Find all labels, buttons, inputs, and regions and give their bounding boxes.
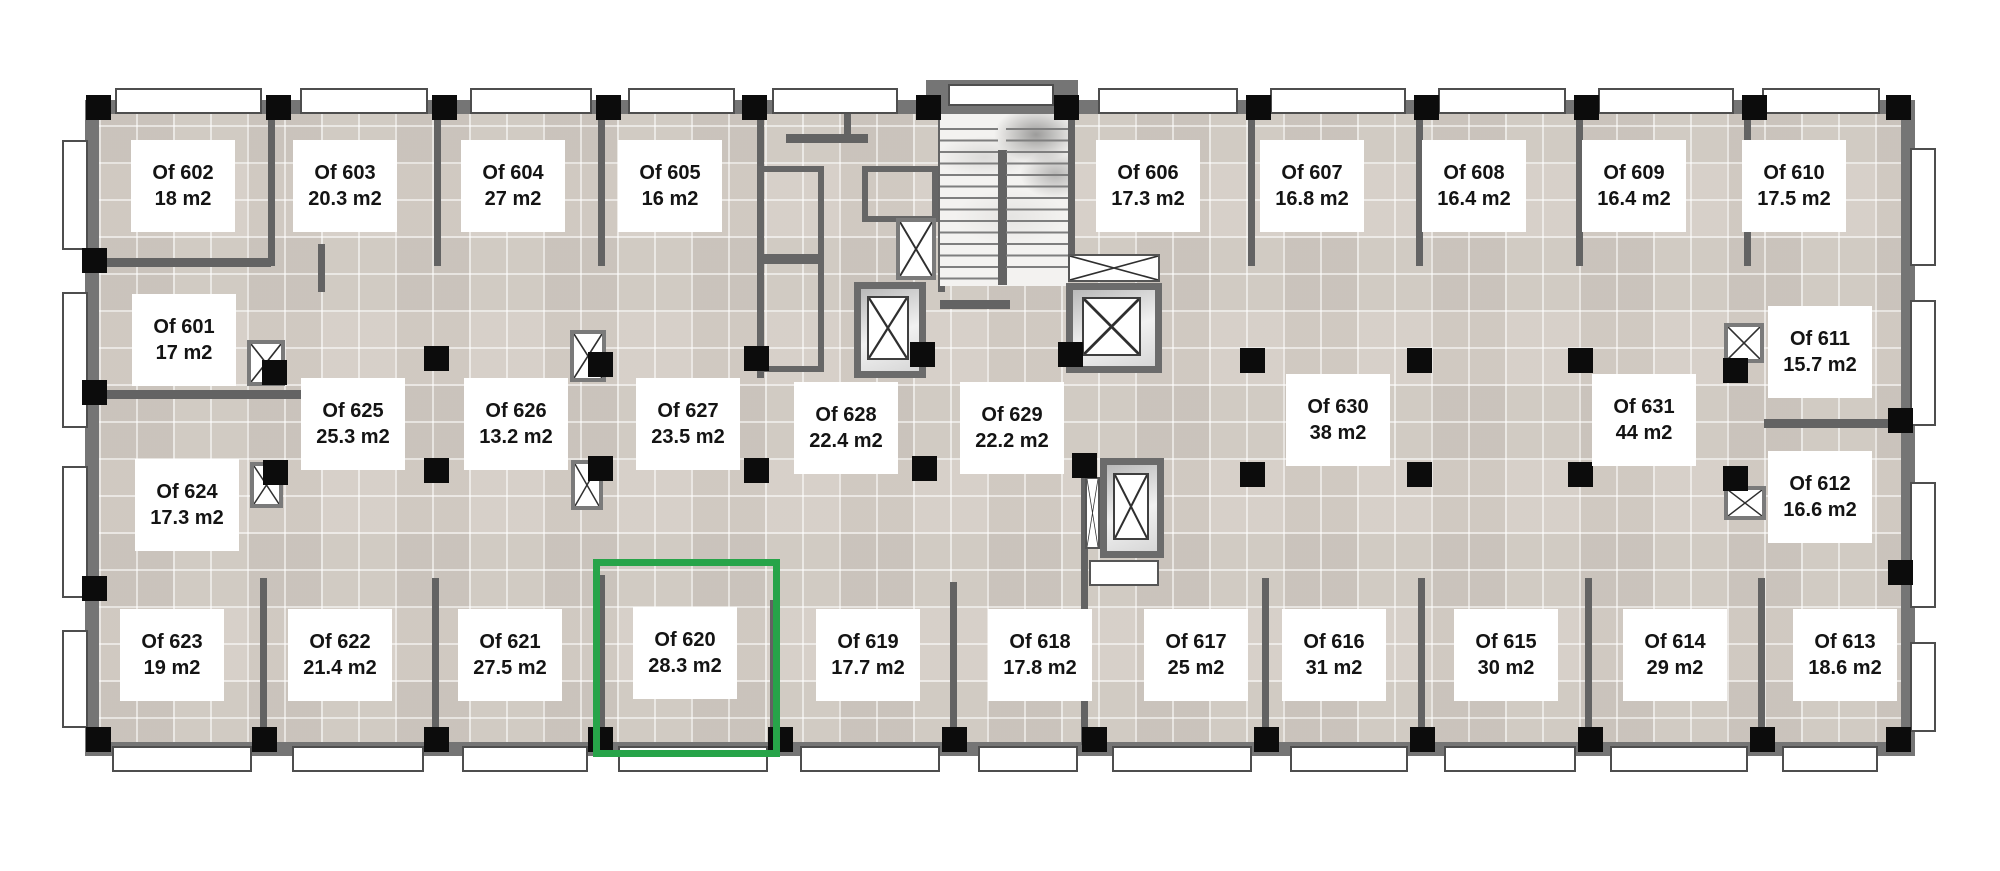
partition-wall (432, 578, 439, 742)
office-number: Of 620 (654, 627, 715, 653)
structural-column (86, 727, 111, 752)
office-number: Of 619 (837, 629, 898, 655)
structural-column (1240, 462, 1265, 487)
elevator (1100, 458, 1164, 558)
office-label-of-606[interactable]: Of 60617.3 m2 (1096, 140, 1200, 232)
office-label-of-611[interactable]: Of 61115.7 m2 (1768, 306, 1872, 398)
office-label-of-631[interactable]: Of 63144 m2 (1592, 374, 1696, 466)
partition-wall (434, 114, 441, 266)
structural-column (596, 95, 621, 120)
structural-column (1058, 342, 1083, 367)
partition-wall (1758, 578, 1765, 742)
partition-wall (598, 114, 605, 266)
structural-column (252, 727, 277, 752)
structural-column (263, 460, 288, 485)
structural-column (1723, 358, 1748, 383)
stair-treads (1006, 128, 1068, 268)
office-number: Of 602 (152, 160, 213, 186)
structural-column (744, 458, 769, 483)
office-number: Of 627 (657, 398, 718, 424)
office-label-of-610[interactable]: Of 61017.5 m2 (1742, 140, 1846, 232)
structural-column (588, 456, 613, 481)
office-label-of-601[interactable]: Of 60117 m2 (132, 294, 236, 386)
structural-column (744, 346, 769, 371)
structural-column (1723, 466, 1748, 491)
x-cross-icon (869, 298, 907, 358)
office-area: 18 m2 (155, 186, 212, 212)
office-number: Of 622 (309, 629, 370, 655)
office-label-of-615[interactable]: Of 61530 m2 (1454, 609, 1558, 701)
office-label-of-628[interactable]: Of 62822.4 m2 (794, 382, 898, 474)
office-number: Of 618 (1009, 629, 1070, 655)
office-label-of-609[interactable]: Of 60916.4 m2 (1582, 140, 1686, 232)
structural-column (916, 95, 941, 120)
x-cross-icon (1115, 475, 1147, 538)
partition-wall (95, 258, 271, 267)
window (1910, 482, 1936, 608)
elevator-lobby-box (1089, 560, 1159, 586)
office-label-of-614[interactable]: Of 61429 m2 (1623, 609, 1727, 701)
window (1598, 88, 1734, 114)
office-label-of-622[interactable]: Of 62221.4 m2 (288, 609, 392, 701)
window (1112, 746, 1252, 772)
office-number: Of 606 (1117, 160, 1178, 186)
office-label-of-604[interactable]: Of 60427 m2 (461, 140, 565, 232)
elevator-car (1082, 297, 1141, 356)
structural-column (588, 352, 613, 377)
office-number: Of 628 (815, 402, 876, 428)
window (112, 746, 252, 772)
office-area: 17 m2 (156, 340, 213, 366)
structural-column (1410, 727, 1435, 752)
x-cross-icon (900, 222, 932, 276)
structural-column (1886, 727, 1911, 752)
office-number: Of 623 (141, 629, 202, 655)
office-label-of-624[interactable]: Of 62417.3 m2 (135, 459, 239, 551)
structural-column (262, 360, 287, 385)
structural-column (1750, 727, 1775, 752)
partition-wall (1585, 578, 1592, 742)
window (628, 88, 735, 114)
structural-column (432, 95, 457, 120)
office-area: 17.3 m2 (150, 505, 223, 531)
window (772, 88, 898, 114)
office-label-of-617[interactable]: Of 61725 m2 (1144, 609, 1248, 701)
x-cross-icon (1728, 490, 1762, 516)
office-area: 27.5 m2 (473, 655, 546, 681)
office-label-of-629[interactable]: Of 62922.2 m2 (960, 382, 1064, 474)
office-area: 17.5 m2 (1757, 186, 1830, 212)
structural-column (82, 380, 107, 405)
office-area: 25.3 m2 (316, 424, 389, 450)
window (800, 746, 940, 772)
partition-wall (318, 244, 325, 292)
structural-column (1578, 727, 1603, 752)
structural-column (424, 458, 449, 483)
shaft (1724, 323, 1764, 363)
partition-wall (260, 578, 267, 742)
window (1290, 746, 1408, 772)
office-number: Of 630 (1307, 394, 1368, 420)
x-cross-icon (1087, 479, 1098, 547)
office-area: 30 m2 (1478, 655, 1535, 681)
office-area: 16.8 m2 (1275, 186, 1348, 212)
office-area: 19 m2 (144, 655, 201, 681)
window (1098, 88, 1238, 114)
partition-wall (1262, 578, 1269, 742)
office-area: 16.4 m2 (1597, 186, 1670, 212)
structural-column (1886, 95, 1911, 120)
office-number: Of 608 (1443, 160, 1504, 186)
window (62, 292, 88, 428)
structural-column (424, 346, 449, 371)
office-label-of-605[interactable]: Of 60516 m2 (618, 140, 722, 232)
office-label-of-608[interactable]: Of 60816.4 m2 (1422, 140, 1526, 232)
office-number: Of 604 (482, 160, 543, 186)
window (300, 88, 428, 114)
office-label-of-619[interactable]: Of 61917.7 m2 (816, 609, 920, 701)
office-area: 17.8 m2 (1003, 655, 1076, 681)
structural-column (912, 456, 937, 481)
partition-wall (1418, 578, 1425, 742)
office-number: Of 601 (153, 314, 214, 340)
office-number: Of 613 (1814, 629, 1875, 655)
window (978, 746, 1078, 772)
partition-wall (1248, 114, 1255, 266)
office-label-of-612[interactable]: Of 61216.6 m2 (1768, 451, 1872, 543)
window (1438, 88, 1566, 114)
office-area: 25 m2 (1168, 655, 1225, 681)
shaft-hatch (1085, 477, 1100, 549)
structural-column (1054, 95, 1079, 120)
office-label-of-625[interactable]: Of 62525.3 m2 (301, 378, 405, 470)
office-label-of-630[interactable]: Of 63038 m2 (1286, 374, 1390, 466)
office-number: Of 617 (1165, 629, 1226, 655)
office-label-of-618[interactable]: Of 61817.8 m2 (988, 609, 1092, 701)
shaft (896, 218, 936, 280)
window (1762, 88, 1880, 114)
office-label-of-603[interactable]: Of 60320.3 m2 (293, 140, 397, 232)
structural-column (424, 727, 449, 752)
window (115, 88, 262, 114)
office-area: 21.4 m2 (303, 655, 376, 681)
office-area: 23.5 m2 (651, 424, 724, 450)
partition-wall (950, 582, 957, 742)
office-number: Of 631 (1613, 394, 1674, 420)
office-area: 17.7 m2 (831, 655, 904, 681)
structural-column (1574, 95, 1599, 120)
window (948, 84, 1054, 106)
window (1270, 88, 1406, 114)
partition-wall (786, 134, 868, 143)
elevator-car (867, 296, 909, 360)
office-area: 29 m2 (1647, 655, 1704, 681)
structural-column (1414, 95, 1439, 120)
office-number: Of 610 (1763, 160, 1824, 186)
structural-column (86, 95, 111, 120)
structural-column (942, 727, 967, 752)
office-number: Of 607 (1281, 160, 1342, 186)
office-area: 18.6 m2 (1808, 655, 1881, 681)
structural-column (1407, 348, 1432, 373)
office-number: Of 621 (479, 629, 540, 655)
window (470, 88, 592, 114)
window (1782, 746, 1878, 772)
window (292, 746, 424, 772)
office-area: 17.3 m2 (1111, 186, 1184, 212)
office-number: Of 609 (1603, 160, 1664, 186)
office-label-of-626[interactable]: Of 62613.2 m2 (464, 378, 568, 470)
structural-column (1407, 462, 1432, 487)
office-label-of-623[interactable]: Of 62319 m2 (120, 609, 224, 701)
structural-column (910, 342, 935, 367)
elevator-car (1113, 473, 1149, 540)
office-number: Of 611 (1790, 326, 1850, 352)
shaft-hatch (1068, 254, 1160, 282)
partition-wall (1764, 419, 1890, 428)
office-number: Of 625 (322, 398, 383, 424)
office-area: 28.3 m2 (648, 653, 721, 679)
office-area: 15.7 m2 (1783, 352, 1856, 378)
office-area: 22.2 m2 (975, 428, 1048, 454)
partition-wall (268, 114, 275, 266)
x-cross-icon (1070, 256, 1158, 280)
structural-column (266, 95, 291, 120)
office-area: 13.2 m2 (479, 424, 552, 450)
office-label-of-607[interactable]: Of 60716.8 m2 (1260, 140, 1364, 232)
office-area: 31 m2 (1306, 655, 1363, 681)
structural-column (1742, 95, 1767, 120)
office-area: 16.4 m2 (1437, 186, 1510, 212)
structural-column (1240, 348, 1265, 373)
window (462, 746, 588, 772)
stair-treads (940, 128, 998, 280)
structural-column (1888, 408, 1913, 433)
window (62, 630, 88, 728)
service-room (862, 166, 938, 222)
window (1610, 746, 1748, 772)
office-label-of-621[interactable]: Of 62127.5 m2 (458, 609, 562, 701)
shaft (1724, 486, 1766, 520)
x-cross-icon (1084, 299, 1139, 354)
office-number: Of 614 (1644, 629, 1705, 655)
office-label-of-602[interactable]: Of 60218 m2 (131, 140, 235, 232)
office-number: Of 605 (639, 160, 700, 186)
structural-column (82, 576, 107, 601)
service-room (758, 166, 824, 260)
structural-column (1568, 462, 1593, 487)
office-number: Of 629 (981, 402, 1042, 428)
office-label-of-613[interactable]: Of 61318.6 m2 (1793, 609, 1897, 701)
office-area: 27 m2 (485, 186, 542, 212)
structural-column (1246, 95, 1271, 120)
partition-wall (1068, 114, 1075, 262)
office-area: 16 m2 (642, 186, 699, 212)
structural-column (1072, 453, 1097, 478)
office-area: 20.3 m2 (308, 186, 381, 212)
structural-column (742, 95, 767, 120)
structural-column (1082, 727, 1107, 752)
structural-column (1888, 560, 1913, 585)
structural-column (82, 248, 107, 273)
window (1910, 642, 1936, 732)
window (62, 140, 88, 250)
floor-plan: Of 60218 m2Of 60320.3 m2Of 60427 m2Of 60… (0, 0, 2000, 871)
office-area: 22.4 m2 (809, 428, 882, 454)
office-number: Of 615 (1475, 629, 1536, 655)
partition-wall (940, 300, 1010, 309)
office-label-of-616[interactable]: Of 61631 m2 (1282, 609, 1386, 701)
x-cross-icon (1728, 327, 1760, 359)
window (1910, 148, 1936, 266)
office-number: Of 616 (1303, 629, 1364, 655)
office-number: Of 603 (314, 160, 375, 186)
office-area: 16.6 m2 (1783, 497, 1856, 523)
office-label-of-627[interactable]: Of 62723.5 m2 (636, 378, 740, 470)
office-number: Of 624 (156, 479, 217, 505)
window (1910, 300, 1936, 426)
office-number: Of 612 (1789, 471, 1850, 497)
office-area: 44 m2 (1616, 420, 1673, 446)
window (1444, 746, 1576, 772)
office-number: Of 626 (485, 398, 546, 424)
structural-column (1568, 348, 1593, 373)
structural-column (1254, 727, 1279, 752)
office-label-of-620[interactable]: Of 62028.3 m2 (633, 607, 737, 699)
office-area: 38 m2 (1310, 420, 1367, 446)
